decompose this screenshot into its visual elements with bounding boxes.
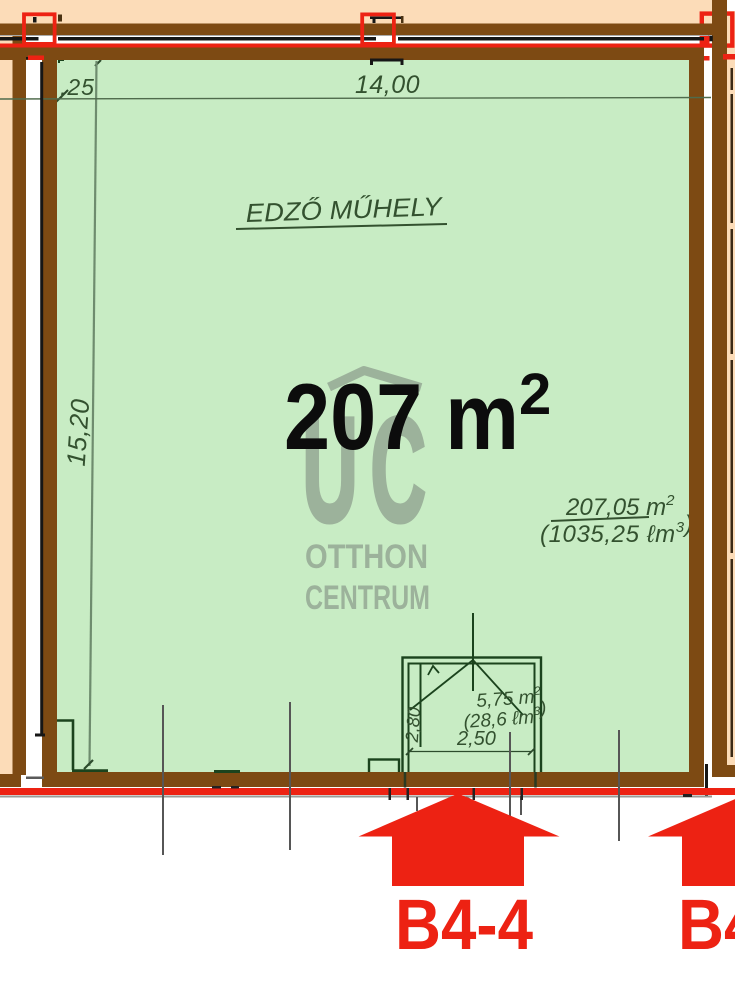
svg-text:14,00: 14,00	[355, 71, 420, 99]
svg-text:B4-4: B4-4	[678, 886, 735, 965]
svg-text:207 m: 207 m	[284, 364, 519, 469]
svg-text:2,50: 2,50	[456, 728, 496, 750]
svg-text:207,05 m2: 207,05 m2	[565, 492, 675, 521]
svg-text:2: 2	[519, 362, 551, 427]
svg-text:B4-4: B4-4	[395, 886, 533, 965]
svg-text:OTTHON: OTTHON	[305, 538, 428, 576]
svg-text:CENTRUM: CENTRUM	[305, 579, 430, 617]
svg-text:,25: ,25	[60, 74, 95, 100]
svg-text:2,80: 2,80	[402, 706, 424, 743]
svg-text:15,20: 15,20	[61, 398, 96, 468]
